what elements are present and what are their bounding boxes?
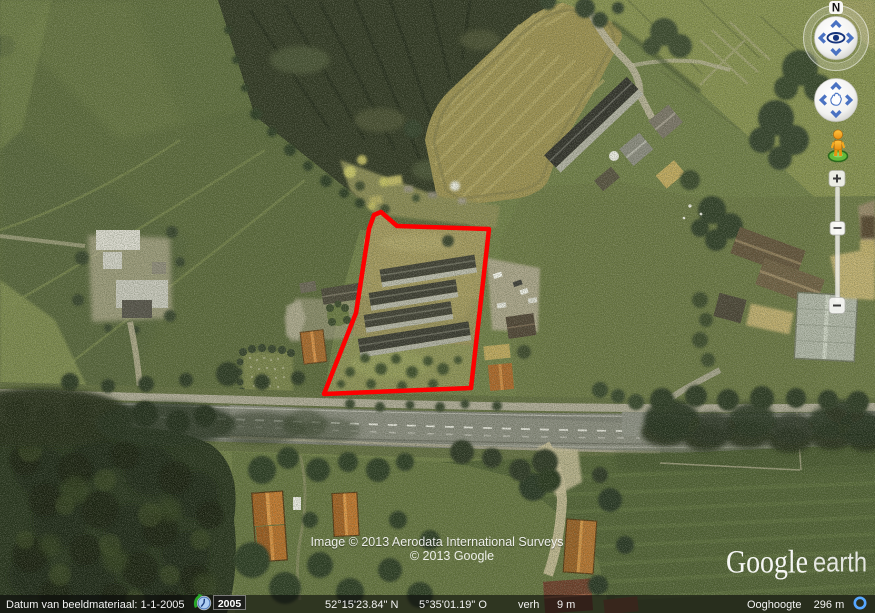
svg-text:2005: 2005 bbox=[218, 598, 242, 610]
svg-text:Image © 2013 Aerodata Internat: Image © 2013 Aerodata International Surv… bbox=[310, 535, 563, 549]
svg-text:52°15'23.84" N: 52°15'23.84" N bbox=[325, 599, 398, 611]
svg-text:N: N bbox=[832, 3, 840, 15]
svg-text:earth: earth bbox=[813, 547, 867, 578]
svg-text:© 2013 Google: © 2013 Google bbox=[410, 549, 494, 563]
svg-text:9 m: 9 m bbox=[557, 599, 575, 611]
svg-text:Google: Google bbox=[726, 545, 808, 581]
svg-text:verh: verh bbox=[518, 599, 539, 611]
svg-text:5°35'01.19" O: 5°35'01.19" O bbox=[419, 599, 487, 611]
svg-text:Ooghoogte 296 m: Ooghoogte 296 m bbox=[747, 599, 844, 611]
svg-text:Datum van beeldmateriaal: 1-1-: Datum van beeldmateriaal: 1-1-2005 bbox=[6, 599, 185, 611]
